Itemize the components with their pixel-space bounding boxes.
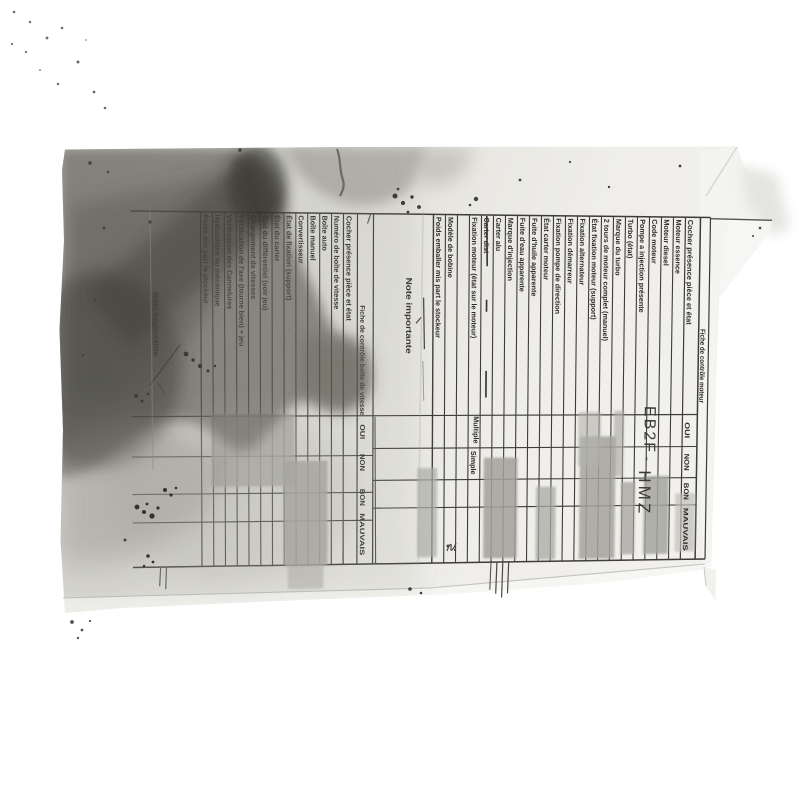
svg-text:Cocher présence pièce et état: Cocher présence pièce et état xyxy=(684,220,695,326)
svg-text:Marque du turbo: Marque du turbo xyxy=(614,219,624,276)
svg-text:Fixation démarreur: Fixation démarreur xyxy=(566,218,576,283)
svg-text:Fixation pompe de direction: Fixation pompe de direction xyxy=(553,218,563,314)
svg-text:Pompe a injection présente: Pompe a injection présente xyxy=(637,219,647,313)
svg-text:Fixation alternateur: Fixation alternateur xyxy=(577,218,587,285)
svg-text:2 tours de moteur complet (man: 2 tours de moteur complet (manuel) xyxy=(601,219,611,342)
svg-text:Fixation moteur (état sur le m: Fixation moteur (état sur le moteur) xyxy=(469,217,479,339)
svg-text:Moteur essence: Moteur essence xyxy=(673,219,683,273)
svg-text:EB2F: EB2F xyxy=(640,406,658,454)
svg-text:MAUVAIS: MAUVAIS xyxy=(681,508,689,552)
svg-text:-: - xyxy=(640,457,655,462)
svg-text:Fuite d'eau apparente: Fuite d'eau apparente xyxy=(518,218,528,292)
svg-text:Carter alu: Carter alu xyxy=(494,218,503,252)
svg-text:Turbo (état): Turbo (état) xyxy=(626,219,636,259)
svg-text:Moteur diesel: Moteur diesel xyxy=(662,219,672,265)
svg-text:Fiche de contrôle moteur: Fiche de contrôle moteur xyxy=(697,329,705,403)
svg-text:Poids emballer mis part le sto: Poids emballer mis part le stockeur xyxy=(434,217,444,338)
svg-text:BON: BON xyxy=(682,483,689,500)
svg-text:Code moteur: Code moteur xyxy=(650,219,660,264)
svg-text:Multiple: Multiple xyxy=(472,416,481,443)
svg-text:État carter moteur: État carter moteur xyxy=(542,218,552,280)
svg-text:NON: NON xyxy=(682,454,689,471)
svg-text:Fuite d'huile apparente: Fuite d'huile apparente xyxy=(530,218,540,296)
svg-text:HMZ: HMZ xyxy=(634,470,654,516)
svg-text:État fixation moteur (support): État fixation moteur (support) xyxy=(589,219,599,321)
svg-text:OUI: OUI xyxy=(683,422,690,438)
svg-text:Simple: Simple xyxy=(469,451,478,475)
svg-text:Modèle de bobine: Modèle de bobine xyxy=(446,217,455,278)
svg-text:Marque d'injection: Marque d'injection xyxy=(506,218,515,281)
